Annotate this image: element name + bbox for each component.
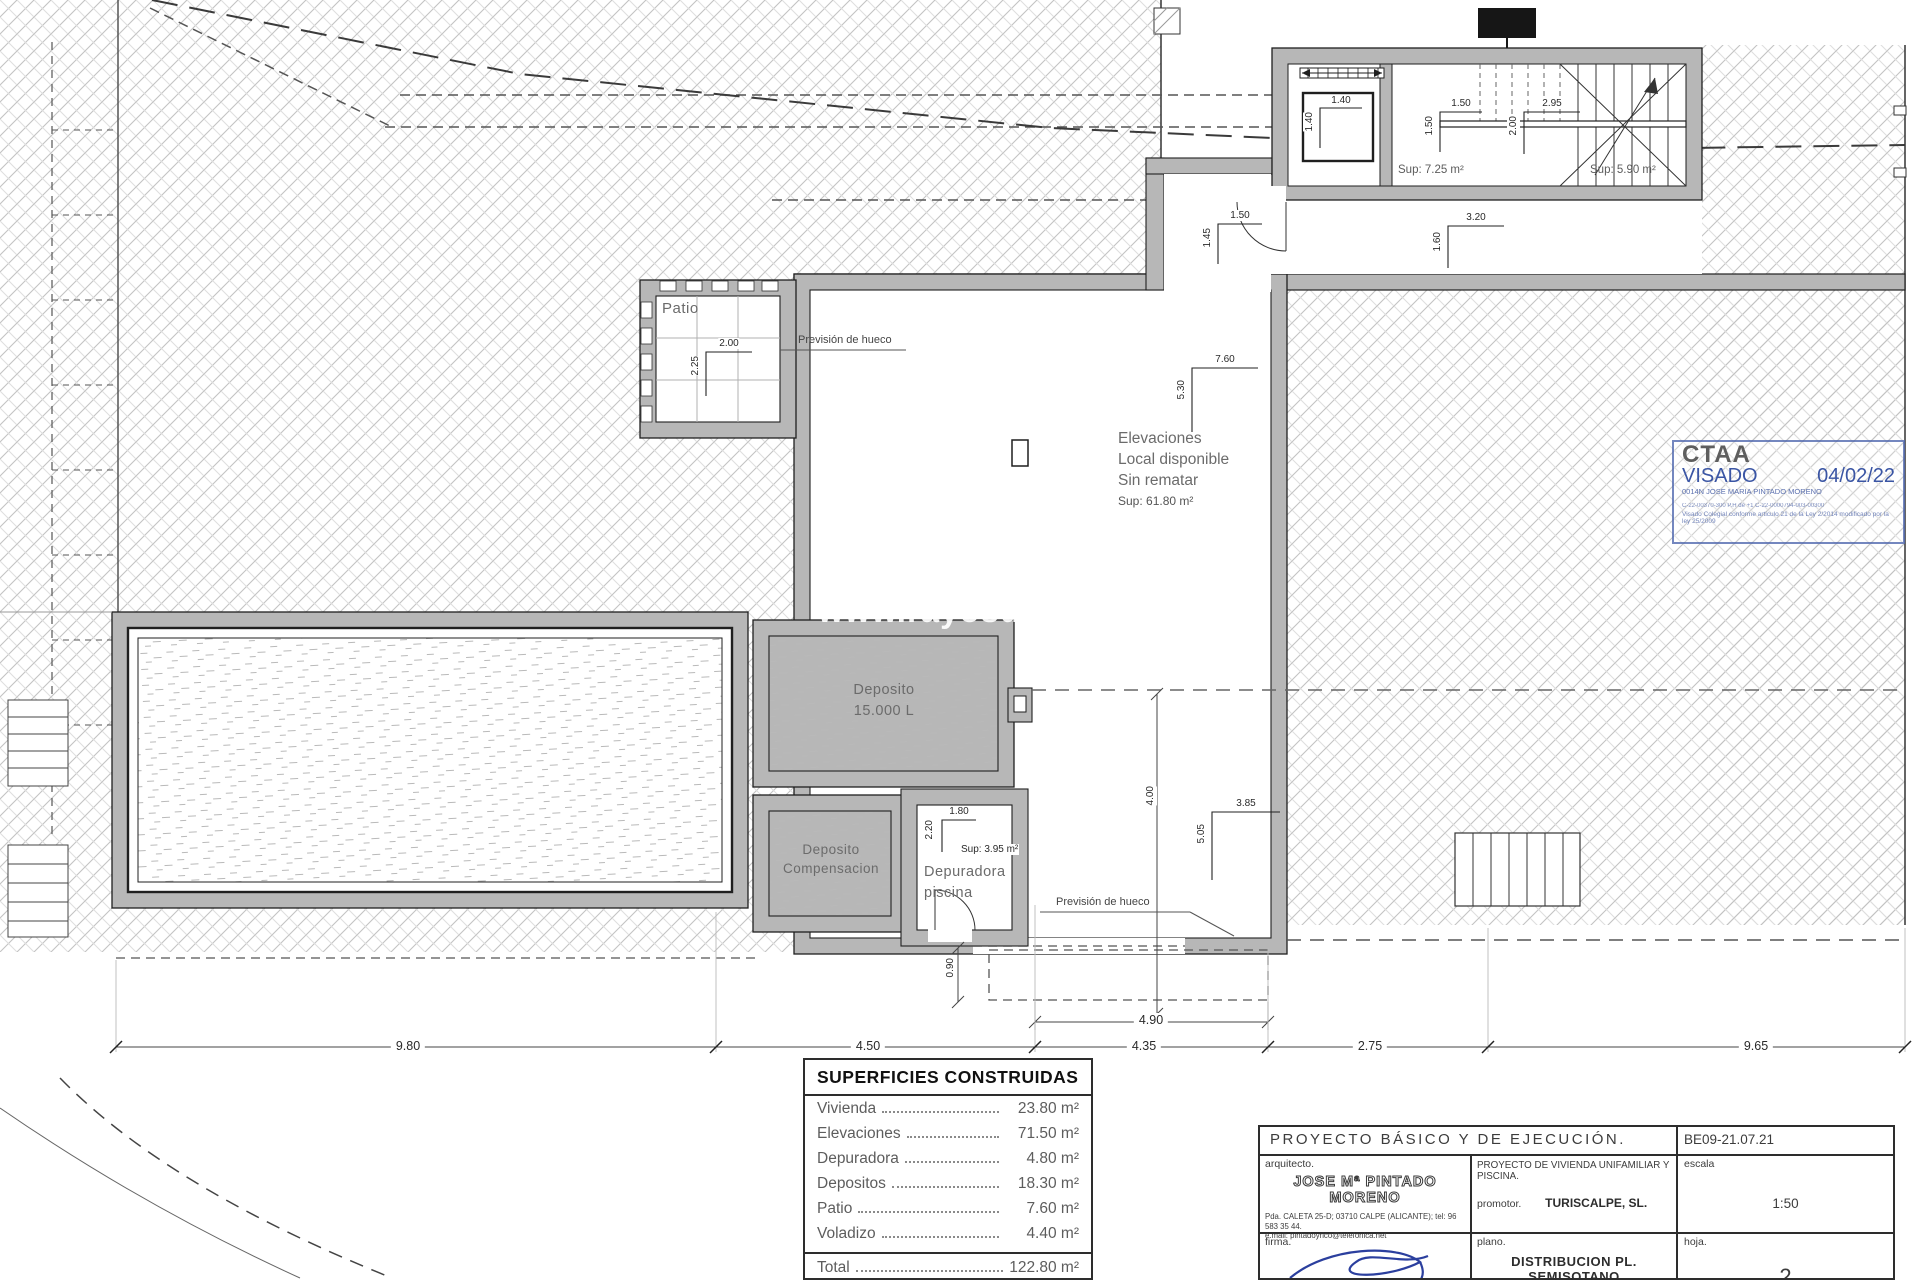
row-value: 4.80 m² xyxy=(1005,1150,1079,1168)
escala-value: 1:50 xyxy=(1684,1196,1887,1211)
dim-275: 2.75 xyxy=(1353,1039,1387,1053)
escala-label: escala xyxy=(1684,1158,1887,1170)
row-label: Patio xyxy=(817,1200,852,1218)
table-row: Elevaciones71.50 m² xyxy=(817,1125,1079,1150)
project-title: PROYECTO BÁSICO Y DE EJECUCIÓN. xyxy=(1260,1127,1678,1154)
depuradora-sup-label: Sup: 3.95 m² xyxy=(960,844,1019,855)
visado-date: 04/02/22 xyxy=(1817,466,1895,486)
row-label: Vivienda xyxy=(817,1100,876,1118)
dim-140v: 1.40 xyxy=(1303,112,1316,131)
project-description: PROYECTO DE VIVIENDA UNIFAMILIAR Y PISCI… xyxy=(1477,1160,1671,1182)
dim-385: 3.85 xyxy=(1235,798,1256,809)
dim-145: 1.45 xyxy=(1201,228,1214,247)
dim-180: 1.80 xyxy=(948,806,969,817)
plano-label: plano. xyxy=(1477,1236,1671,1248)
architect-address: Pda. CALETA 25-D; 03710 CALPE (ALICANTE)… xyxy=(1265,1212,1465,1231)
table-row: Depuradora4.80 m² xyxy=(817,1150,1079,1175)
dim-150h: 1.50 xyxy=(1450,98,1471,109)
floor-plan-sheet: Patio Previsión de hueco Previsión de hu… xyxy=(0,0,1920,1280)
dim-320: 3.20 xyxy=(1465,212,1486,223)
dim-200v: 2.00 xyxy=(1507,116,1520,135)
dim-490: 4.90 xyxy=(1134,1013,1168,1027)
deposito-label: Deposito 15.000 L xyxy=(853,680,914,722)
dim-150v: 1.50 xyxy=(1423,116,1436,135)
patio-label: Patio xyxy=(662,300,699,317)
deposito-line2: 15.000 L xyxy=(853,701,914,722)
row-label: Depositos xyxy=(817,1175,886,1193)
arquitecto-label: arquitecto. xyxy=(1265,1158,1465,1170)
row-value: 18.30 m² xyxy=(1005,1175,1079,1193)
row-value: 71.50 m² xyxy=(1005,1125,1079,1143)
dim-150door: 1.50 xyxy=(1229,210,1250,221)
elevaciones-line3: Sin rematar xyxy=(1118,470,1229,491)
areas-table-title: SUPERFICIES CONSTRUIDAS xyxy=(805,1060,1091,1096)
row-value: 23.80 m² xyxy=(1005,1100,1079,1118)
elevaciones-sup: Sup: 61.80 m² xyxy=(1118,491,1229,512)
plano-name: DISTRIBUCION PL. SEMISOTANO xyxy=(1477,1254,1671,1280)
table-total-row: Total122.80 m² xyxy=(805,1252,1091,1277)
compensacion-line2: Compensacion xyxy=(783,859,879,878)
row-label: Depuradora xyxy=(817,1150,899,1168)
ctaa-logo: CTAA xyxy=(1682,444,1895,466)
site-curve2 xyxy=(0,1108,300,1278)
visado-refs: C-22-00370-300 P.H de +1 C-22-0000794-00… xyxy=(1682,503,1895,509)
total-value: 122.80 m² xyxy=(1009,1259,1079,1277)
architect-name: JOSE Mª PINTADO MORENO xyxy=(1265,1174,1465,1206)
hoja-number: 2 xyxy=(1684,1264,1887,1280)
dim-435: 4.35 xyxy=(1127,1039,1161,1053)
watermark: www.rayosdesol xyxy=(818,592,1091,630)
row-label: Elevaciones xyxy=(817,1125,901,1143)
depuradora-label: Depuradora piscina xyxy=(924,862,1006,904)
visado-label: VISADO xyxy=(1682,466,1758,486)
dim-450: 4.50 xyxy=(851,1039,885,1053)
project-code: BE09-21.07.21 xyxy=(1678,1127,1893,1154)
dim-160: 1.60 xyxy=(1431,232,1444,251)
total-label: Total xyxy=(817,1259,850,1277)
prevision-hueco-bottom-label: Previsión de hueco xyxy=(1056,896,1150,908)
promotor-label: promotor. xyxy=(1477,1198,1521,1210)
pool xyxy=(0,612,748,908)
table-row: Voladizo4.40 m² xyxy=(817,1225,1079,1250)
dim-505: 5.05 xyxy=(1195,824,1208,843)
row-value: 7.60 m² xyxy=(1005,1200,1079,1218)
compensacion-line1: Deposito xyxy=(783,840,879,859)
visado-stamp: CTAA VISADO 04/02/22 0014N JOSE MARIA PI… xyxy=(1672,440,1905,544)
prevision-hueco-top-label: Previsión de hueco xyxy=(798,334,892,346)
visado-legal: Visado Colegial conforme articulo 21 de … xyxy=(1682,511,1895,525)
elevaciones-label: Elevaciones Local disponible Sin rematar… xyxy=(1118,428,1229,512)
row-label: Voladizo xyxy=(817,1225,876,1243)
elevaciones-line2: Local disponible xyxy=(1118,449,1229,470)
dim-220: 2.20 xyxy=(923,820,936,839)
row-value: 4.40 m² xyxy=(1005,1225,1079,1243)
dim-140h: 1.40 xyxy=(1330,95,1351,106)
dim-400: 4.00 xyxy=(1144,786,1157,805)
deposito-line1: Deposito xyxy=(853,680,914,701)
signature xyxy=(1278,1242,1458,1280)
dim-760: 7.60 xyxy=(1214,354,1235,365)
elevaciones-line1: Elevaciones xyxy=(1118,428,1229,449)
depuradora-line2: piscina xyxy=(924,883,1006,904)
areas-table: SUPERFICIES CONSTRUIDAS Vivienda23.80 m²… xyxy=(803,1058,1093,1280)
title-block: PROYECTO BÁSICO Y DE EJECUCIÓN. BE09-21.… xyxy=(1258,1125,1895,1280)
compensacion-label: Deposito Compensacion xyxy=(783,840,879,878)
depuradora-line1: Depuradora xyxy=(924,862,1006,883)
table-row: Patio7.60 m² xyxy=(817,1200,1079,1225)
grille xyxy=(1455,833,1580,906)
dim-965: 9.65 xyxy=(1739,1039,1773,1053)
dim-295: 2.95 xyxy=(1541,98,1562,109)
hoja-label: hoja. xyxy=(1684,1236,1887,1248)
visado-architect: 0014N JOSE MARIA PINTADO MORENO xyxy=(1682,487,1895,496)
ascensor-sup-label: Sup: 7.25 m² xyxy=(1398,164,1464,176)
dim-200patio: 2.00 xyxy=(718,338,739,349)
escalera-sup-label: Sup: 5.90 m² xyxy=(1590,164,1656,176)
promotor-name: TURISCALPE, SL. xyxy=(1521,1196,1671,1210)
table-row: Depositos18.30 m² xyxy=(817,1175,1079,1200)
dim-530: 5.30 xyxy=(1175,380,1188,399)
table-row: Vivienda23.80 m² xyxy=(817,1100,1079,1125)
dim-090: 0.90 xyxy=(944,958,957,977)
dim-980: 9.80 xyxy=(391,1039,425,1053)
dim-225patio: 2.25 xyxy=(689,356,702,375)
